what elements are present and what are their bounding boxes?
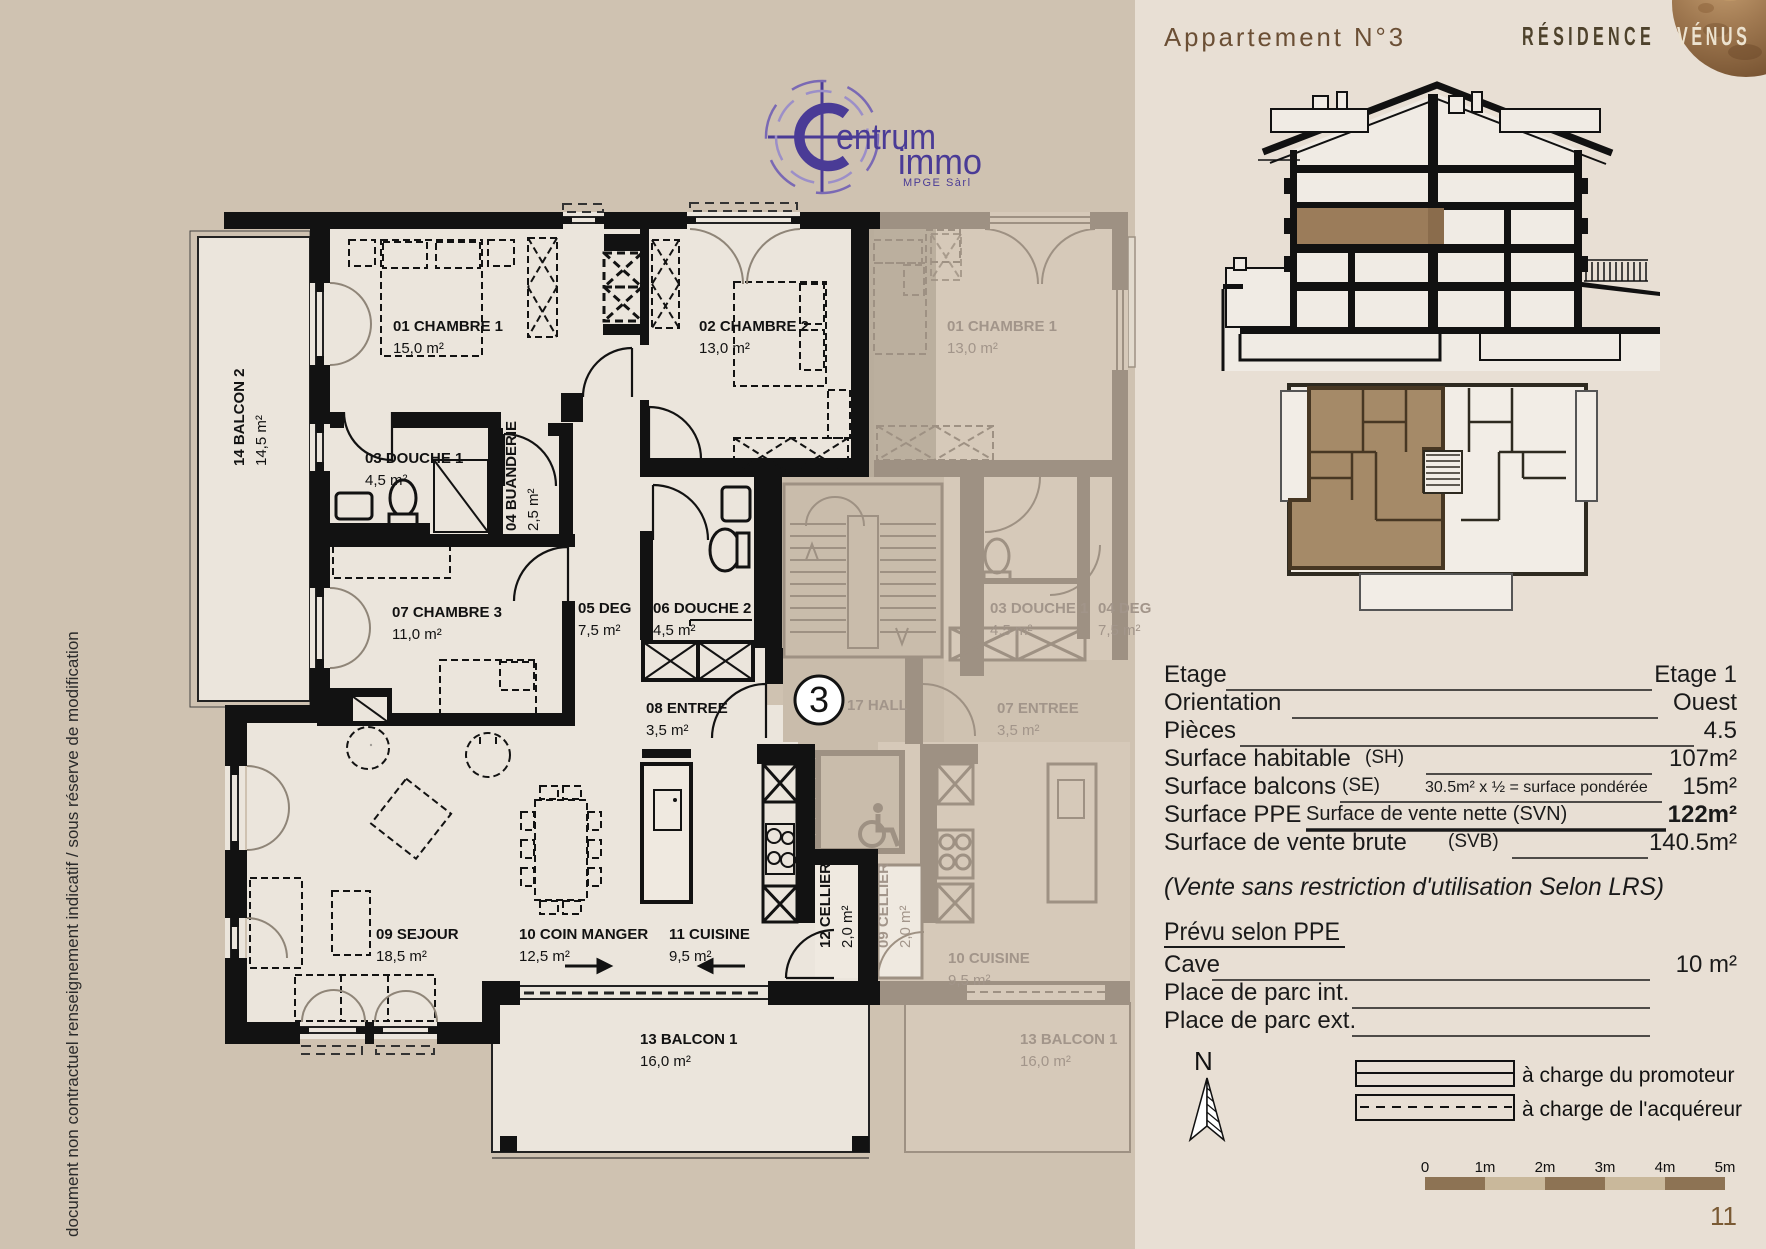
svg-text:30.5m² x ½ = surface pondérée: 30.5m² x ½ = surface pondérée: [1425, 779, 1648, 796]
svg-text:à charge de l'acquéreur: à charge de l'acquéreur: [1522, 1098, 1742, 1121]
svg-text:7,5 m²: 7,5 m²: [1098, 622, 1141, 639]
svg-text:document non contractuel rense: document non contractuel renseignement i…: [63, 631, 82, 1237]
svg-text:0: 0: [1421, 1159, 1429, 1176]
svg-text:Surface habitable: Surface habitable: [1164, 745, 1351, 772]
svg-text:2,0 m²: 2,0 m²: [839, 905, 856, 948]
svg-text:14 BALCON 2: 14 BALCON 2: [231, 368, 248, 466]
svg-text:11: 11: [1710, 1201, 1737, 1231]
svg-text:(SH): (SH): [1365, 747, 1404, 768]
svg-text:07 ENTREE: 07 ENTREE: [997, 700, 1079, 717]
svg-text:3: 3: [809, 679, 829, 720]
svg-text:11 CUISINE: 11 CUISINE: [669, 926, 750, 943]
svg-text:03 DOUCHE 1: 03 DOUCHE 1: [365, 450, 463, 467]
svg-text:107m²: 107m²: [1669, 745, 1737, 772]
svg-text:14,5 m²: 14,5 m²: [253, 415, 270, 466]
svg-text:13 BALCON 1: 13 BALCON 1: [1020, 1031, 1118, 1048]
svg-text:(SE): (SE): [1342, 775, 1380, 796]
svg-text:16,0 m²: 16,0 m²: [640, 1053, 691, 1070]
svg-text:10 CUISINE: 10 CUISINE: [948, 950, 1030, 967]
svg-text:17 HALL: 17 HALL: [847, 697, 908, 714]
svg-text:09 CELLIER: 09 CELLIER: [875, 863, 892, 948]
svg-text:9,5 m²: 9,5 m²: [948, 972, 991, 989]
svg-text:15,0 m²: 15,0 m²: [393, 340, 444, 357]
svg-text:12,5 m²: 12,5 m²: [519, 948, 570, 965]
svg-text:(SVB): (SVB): [1448, 831, 1499, 852]
svg-text:13,0 m²: 13,0 m²: [947, 340, 998, 357]
svg-text:Surface PPE: Surface PPE: [1164, 801, 1301, 828]
svg-text:2,5 m²: 2,5 m²: [525, 488, 542, 531]
svg-text:2,0 m²: 2,0 m²: [897, 905, 914, 948]
svg-text:2m: 2m: [1535, 1159, 1556, 1176]
svg-text:9,5 m²: 9,5 m²: [669, 948, 712, 965]
svg-text:4,5 m²: 4,5 m²: [653, 622, 696, 639]
svg-text:15m²: 15m²: [1682, 773, 1737, 800]
svg-text:N: N: [1194, 1046, 1213, 1076]
svg-text:Pièces: Pièces: [1164, 717, 1236, 744]
svg-text:MPGE Sàrl: MPGE Sàrl: [903, 177, 972, 189]
svg-text:Surface de vente nette (SVN): Surface de vente nette (SVN): [1306, 803, 1567, 825]
svg-text:Place de parc int.: Place de parc int.: [1164, 979, 1349, 1006]
svg-text:08 ENTREE: 08 ENTREE: [646, 700, 728, 717]
svg-text:Etage: Etage: [1164, 661, 1227, 688]
svg-text:Place de parc ext.: Place de parc ext.: [1164, 1007, 1356, 1034]
svg-text:3m: 3m: [1595, 1159, 1616, 1176]
svg-text:140.5m²: 140.5m²: [1649, 829, 1737, 856]
svg-text:04 BUANDERIE: 04 BUANDERIE: [503, 421, 520, 531]
svg-text:3,5 m²: 3,5 m²: [997, 722, 1040, 739]
svg-text:06 DOUCHE 2: 06 DOUCHE 2: [653, 600, 751, 617]
svg-text:16,0 m²: 16,0 m²: [1020, 1053, 1071, 1070]
svg-text:VÉNUS: VÉNUS: [1677, 21, 1751, 51]
svg-text:Etage 1: Etage 1: [1654, 661, 1737, 688]
svg-text:Surface balcons: Surface balcons: [1164, 773, 1336, 800]
svg-text:13,0 m²: 13,0 m²: [699, 340, 750, 357]
svg-text:(Vente sans restriction d'util: (Vente sans restriction d'utilisation Se…: [1164, 873, 1664, 901]
svg-text:4,5 m²: 4,5 m²: [990, 622, 1033, 639]
svg-text:5m: 5m: [1715, 1159, 1736, 1176]
svg-text:4,5 m²: 4,5 m²: [365, 472, 408, 489]
svg-text:Surface de vente brute: Surface de vente brute: [1164, 829, 1407, 856]
svg-text:4.5: 4.5: [1704, 717, 1737, 744]
svg-text:10 COIN MANGER: 10 COIN MANGER: [519, 926, 648, 943]
svg-text:10 m²: 10 m²: [1676, 951, 1737, 978]
svg-text:RÉSIDENCE: RÉSIDENCE: [1522, 21, 1655, 51]
svg-text:03 DOUCHE 1: 03 DOUCHE 1: [990, 600, 1088, 617]
svg-text:13 BALCON 1: 13 BALCON 1: [640, 1031, 738, 1048]
svg-text:09 SEJOUR: 09 SEJOUR: [376, 926, 459, 943]
svg-text:01 CHAMBRE 1: 01 CHAMBRE 1: [947, 318, 1057, 335]
svg-text:04 DEG: 04 DEG: [1098, 600, 1151, 617]
svg-text:18,5 m²: 18,5 m²: [376, 948, 427, 965]
svg-text:Cave: Cave: [1164, 951, 1220, 978]
svg-text:Prévu selon PPE: Prévu selon PPE: [1164, 918, 1340, 946]
svg-text:Orientation: Orientation: [1164, 689, 1281, 716]
svg-text:Appartement N°3: Appartement N°3: [1164, 22, 1406, 52]
svg-text:immo: immo: [898, 141, 982, 182]
svg-text:Ouest: Ouest: [1673, 689, 1737, 716]
svg-text:à charge du promoteur: à charge du promoteur: [1522, 1064, 1734, 1087]
svg-text:12 CELLIER: 12 CELLIER: [817, 863, 834, 948]
svg-text:4m: 4m: [1655, 1159, 1676, 1176]
svg-text:1m: 1m: [1475, 1159, 1496, 1176]
svg-text:05 DEG: 05 DEG: [578, 600, 631, 617]
svg-text:02 CHAMBRE 2: 02 CHAMBRE 2: [699, 318, 809, 335]
svg-text:11,0 m²: 11,0 m²: [392, 626, 442, 643]
svg-text:7,5 m²: 7,5 m²: [578, 622, 621, 639]
svg-text:07 CHAMBRE 3: 07 CHAMBRE 3: [392, 604, 502, 621]
svg-text:01 CHAMBRE 1: 01 CHAMBRE 1: [393, 318, 503, 335]
svg-text:3,5 m²: 3,5 m²: [646, 722, 689, 739]
svg-text:122m²: 122m²: [1668, 801, 1737, 828]
